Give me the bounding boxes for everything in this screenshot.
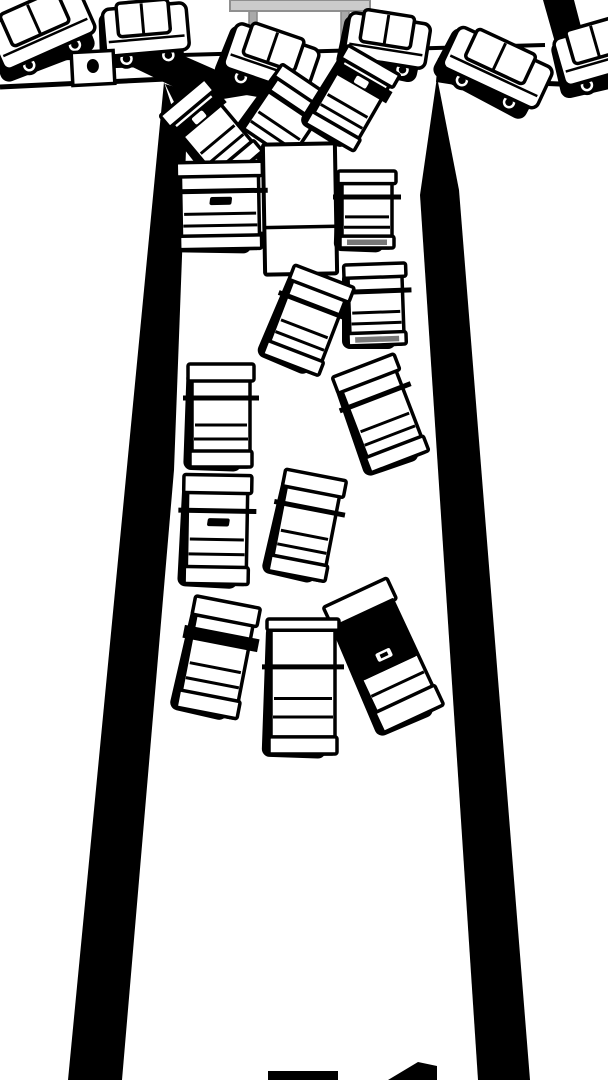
game-canvas[interactable] xyxy=(0,0,608,1080)
gray-bumper-strip xyxy=(347,240,387,246)
left-lane-1 xyxy=(171,161,269,255)
cross-car-4 xyxy=(428,18,556,125)
right-tilted xyxy=(328,352,438,480)
delivery-truck xyxy=(258,143,342,274)
bottom-right-car xyxy=(318,578,447,740)
rear-window-line xyxy=(352,311,400,313)
bottom-left-car xyxy=(168,595,265,725)
car-front-bumper xyxy=(188,364,254,381)
car-front-bumper xyxy=(338,171,396,184)
mid-tilted-2 xyxy=(260,468,351,587)
car-body xyxy=(271,622,335,754)
left-lane-3 xyxy=(177,474,257,589)
windshield-band xyxy=(172,190,268,192)
bottom-mid-car xyxy=(262,619,344,759)
sign-bar xyxy=(230,0,370,11)
car-front-bumper xyxy=(184,474,252,493)
right-lane-1 xyxy=(333,171,401,253)
car-front-bumper xyxy=(267,619,339,630)
rear-window-line xyxy=(184,213,256,214)
truck-cab-divider xyxy=(264,226,336,227)
car-rear-bumper xyxy=(180,235,262,250)
car-front-bumper xyxy=(176,161,262,177)
game-viewport[interactable] xyxy=(0,0,608,1080)
car-front-bumper xyxy=(344,263,406,278)
trunk-line xyxy=(352,322,402,324)
trunk-line xyxy=(189,554,245,555)
box-truck-rear xyxy=(71,50,115,85)
car-rear-bumper xyxy=(184,566,248,584)
car-rear-bumper xyxy=(190,451,252,467)
left-wall xyxy=(68,82,186,1080)
right-wall xyxy=(420,77,530,1080)
entering-car-corner xyxy=(388,1062,437,1080)
roof-mark xyxy=(207,518,230,526)
rear-window-line xyxy=(190,539,244,540)
roof-mark xyxy=(209,197,232,205)
entering-car-roof xyxy=(268,1071,338,1080)
windshield-band xyxy=(178,510,256,511)
left-lane-2 xyxy=(183,364,259,472)
right-lane-2 xyxy=(339,263,414,351)
car-rear-bumper xyxy=(269,737,337,754)
trunk-line xyxy=(183,225,257,226)
truck-body xyxy=(263,143,337,274)
